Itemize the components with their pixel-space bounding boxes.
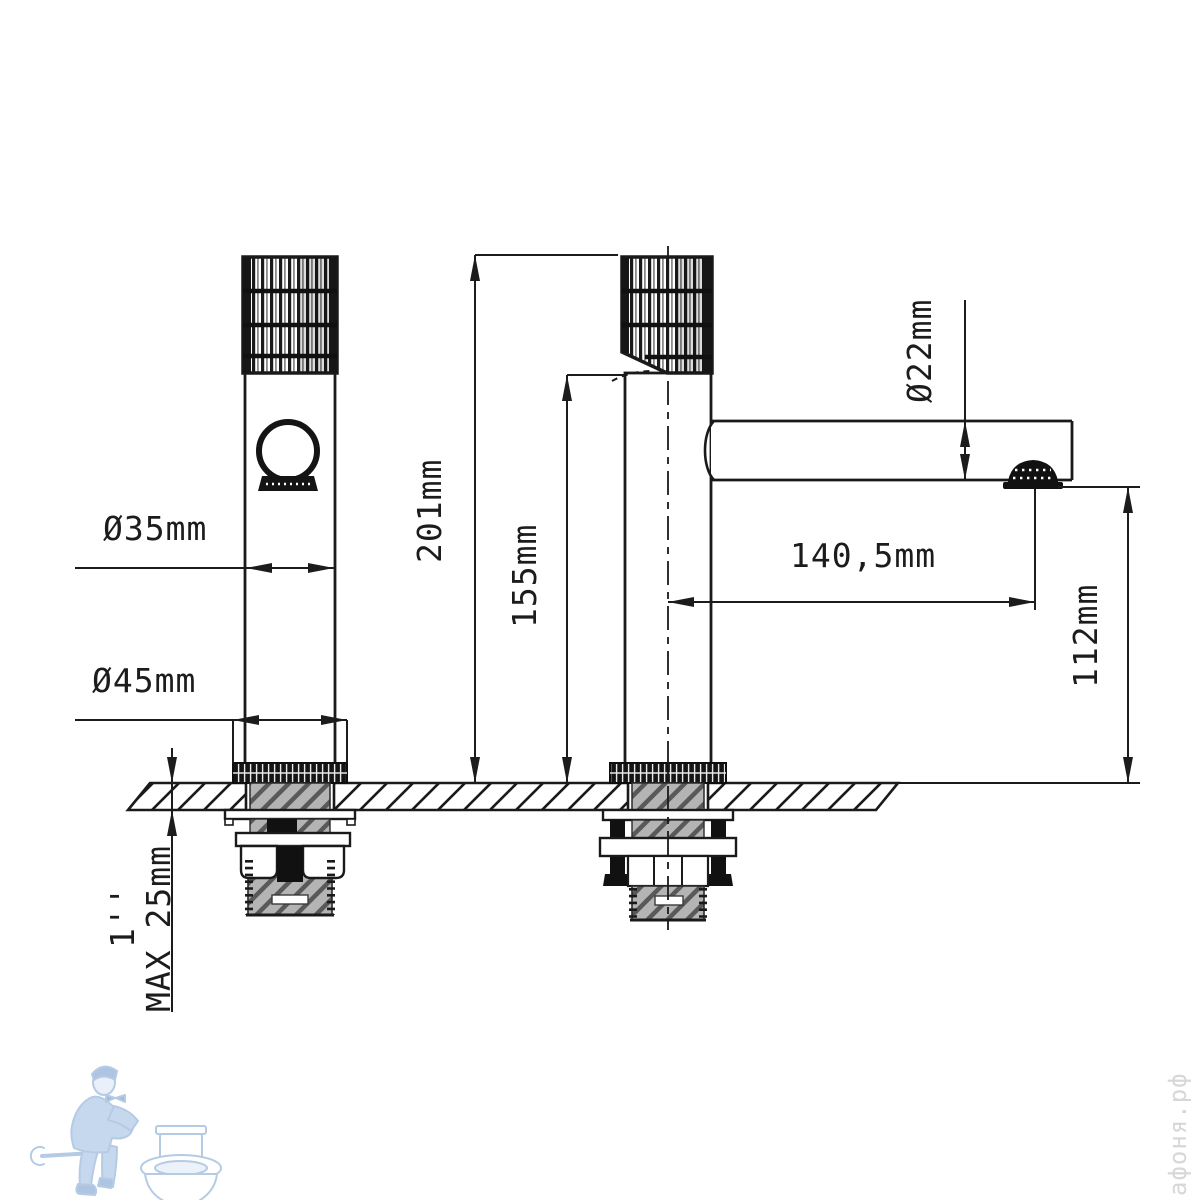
- toilet-icon: [141, 1126, 221, 1200]
- dim-label-body-diameter: Ø35mm: [103, 509, 207, 548]
- plumber-logo: [31, 1067, 221, 1200]
- boot: [98, 1178, 114, 1188]
- faucet-side-view: [600, 246, 1072, 930]
- bow-tie: [106, 1095, 125, 1102]
- washer: [225, 810, 355, 819]
- faucet-front-view: [225, 257, 355, 915]
- technical-drawing-canvas: Ø35mm Ø45mm 201mm 155mm: [0, 0, 1200, 1200]
- brand-logo-medallion: [258, 422, 318, 491]
- dim-label-body-height: 155mm: [505, 524, 544, 628]
- faucet-dimension-drawing: Ø35mm Ø45mm 201mm 155mm: [0, 0, 1200, 1200]
- faucet-handle-front: [243, 257, 337, 373]
- dim-label-spout-reach: 140,5mm: [790, 536, 936, 575]
- site-watermark-text: афоня.рф: [1164, 1072, 1192, 1196]
- base-ring-front: [233, 763, 347, 783]
- dim-spout-reach: 140,5mm: [668, 489, 1035, 610]
- dim-label-total-height: 201mm: [410, 459, 449, 563]
- dim-label-thread-size: 1'': [103, 885, 142, 948]
- dimension-annotations: Ø35mm Ø45mm 201mm 155mm: [75, 255, 1140, 1012]
- dim-label-deck-thickness: MAX 25mm: [139, 845, 178, 1012]
- boot: [76, 1184, 96, 1195]
- dim-label-base-diameter: Ø45mm: [92, 661, 196, 700]
- faucet-handle-side: [612, 257, 712, 381]
- dim-spout-height: 112mm: [1058, 487, 1140, 783]
- dim-label-spout-diameter: Ø22mm: [900, 299, 939, 403]
- dim-total-height: 201mm: [410, 255, 618, 783]
- dim-label-spout-height: 112mm: [1066, 584, 1105, 688]
- mounting-plate: [236, 833, 350, 846]
- nut-lobe: [303, 846, 344, 878]
- dim-body-height: 155mm: [505, 375, 624, 783]
